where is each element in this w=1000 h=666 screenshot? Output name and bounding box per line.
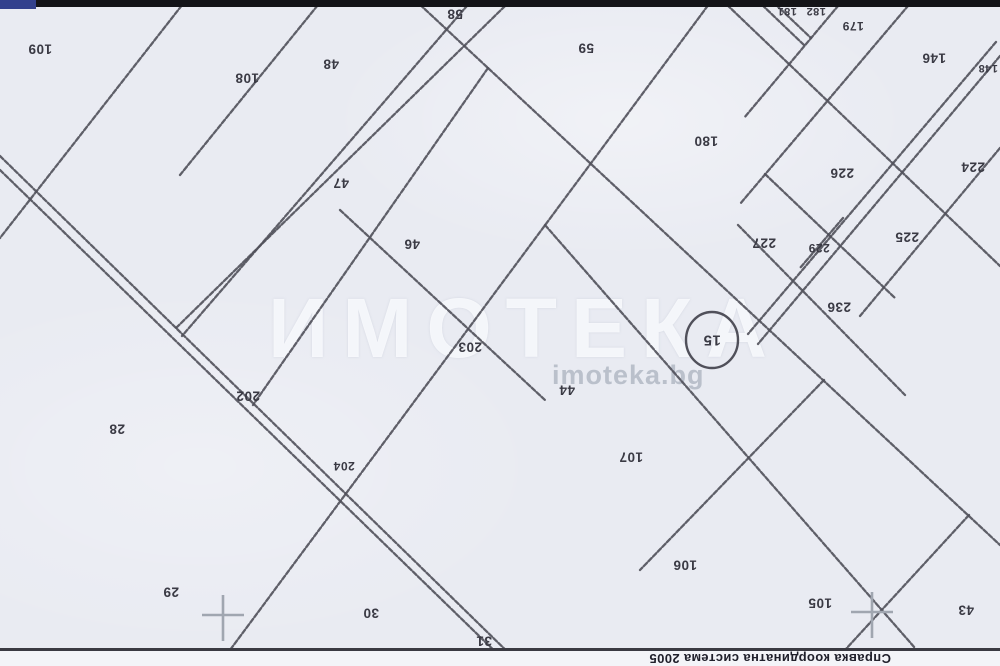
parcel-label-108: 108	[235, 71, 259, 86]
parcel-label-225: 225	[895, 230, 919, 245]
parcel-label-148: 148	[978, 62, 998, 74]
parcel-label-179: 179	[842, 19, 864, 33]
parcel-label-15: 15	[703, 332, 721, 349]
parcel-labels-layer: 1091084858594746180181182179146148224226…	[0, 0, 1000, 666]
footer-strip: Справка координатна система 2005	[0, 651, 1000, 666]
scan-top-edge-blue-segment	[0, 0, 36, 9]
parcel-label-226: 226	[830, 166, 854, 181]
parcel-label-48: 48	[323, 57, 339, 72]
parcel-label-202: 202	[236, 389, 260, 404]
parcel-label-236: 236	[827, 300, 851, 315]
parcel-label-227: 227	[752, 236, 776, 251]
parcel-label-58: 58	[447, 7, 463, 22]
parcel-label-204: 204	[333, 459, 355, 473]
parcel-label-46: 46	[404, 237, 420, 252]
parcel-label-106: 106	[673, 558, 697, 573]
parcel-label-30: 30	[363, 606, 379, 621]
parcel-label-224: 224	[961, 160, 985, 175]
scan-top-edge-bar	[0, 0, 1000, 7]
parcel-label-44: 44	[559, 383, 575, 398]
parcel-label-29: 29	[163, 585, 179, 600]
parcel-label-47: 47	[333, 176, 349, 191]
parcel-label-180: 180	[694, 134, 718, 149]
parcel-label-105: 105	[808, 596, 832, 611]
parcel-label-28: 28	[109, 422, 125, 437]
parcel-label-146: 146	[922, 51, 946, 66]
parcel-label-107: 107	[619, 450, 643, 465]
cadastral-map-scan: ИМОТЕКА imoteka.bg 109108485859474618018…	[0, 0, 1000, 666]
parcel-label-229: 229	[808, 241, 830, 255]
parcel-label-109: 109	[28, 42, 52, 57]
parcel-label-43: 43	[958, 603, 974, 618]
parcel-label-59: 59	[578, 41, 594, 56]
parcel-label-203: 203	[458, 340, 482, 355]
parcel-label-31: 31	[476, 634, 492, 649]
coordinate-system-caption: Справка координатна система 2005	[540, 651, 1000, 666]
